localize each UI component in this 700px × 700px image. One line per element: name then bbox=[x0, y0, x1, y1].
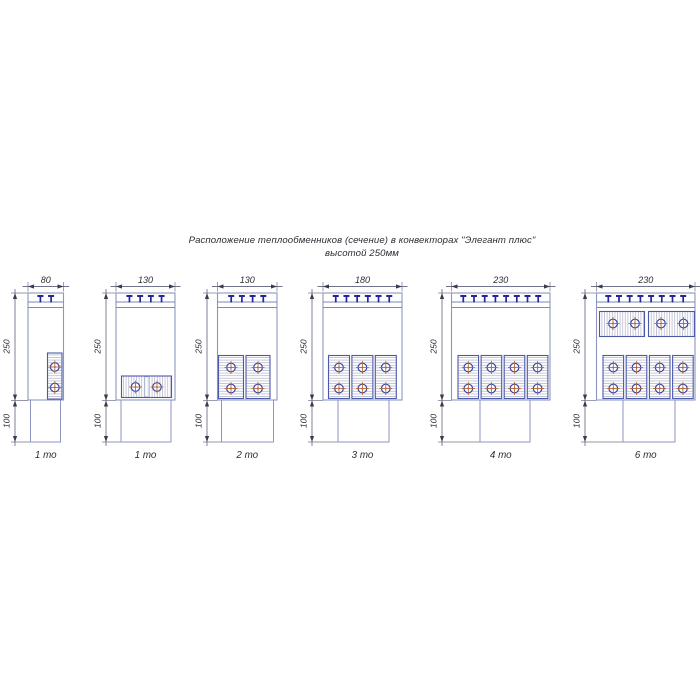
air-duct bbox=[222, 400, 274, 442]
dim-width-label: 230 bbox=[492, 275, 508, 285]
convector-130-1to: 1302501001 то bbox=[93, 275, 181, 461]
dim-width-label: 180 bbox=[355, 275, 370, 285]
dim-foot-label: 100 bbox=[194, 414, 204, 428]
convector-80-1to: 802501001 то bbox=[2, 275, 70, 461]
dim-height-label: 250 bbox=[93, 339, 103, 354]
dim-foot-label: 100 bbox=[429, 414, 439, 428]
air-duct bbox=[480, 400, 530, 442]
air-duct bbox=[31, 400, 61, 442]
dim-height-label: 250 bbox=[429, 339, 439, 354]
unit-count-label: 6 то bbox=[635, 450, 657, 461]
unit-count-label: 3 то bbox=[352, 450, 374, 461]
dim-height-label: 250 bbox=[194, 339, 204, 354]
dim-width-label: 230 bbox=[637, 275, 653, 285]
block-seam bbox=[145, 377, 148, 397]
unit-count-label: 1 то bbox=[135, 450, 157, 461]
convector-130-2to: 1302501002 то bbox=[194, 275, 283, 461]
air-duct bbox=[623, 400, 675, 442]
dim-foot-label: 100 bbox=[2, 414, 12, 428]
dim-height-label: 250 bbox=[2, 339, 12, 354]
air-duct bbox=[121, 400, 171, 442]
dim-foot-label: 100 bbox=[299, 414, 309, 428]
dim-width-label: 130 bbox=[138, 275, 153, 285]
convector-230-4to: 2302501004 то bbox=[429, 275, 556, 461]
unit-count-label: 2 то bbox=[235, 450, 258, 461]
convector-230-6to: 2302501006 то bbox=[572, 275, 700, 461]
dim-width-label: 80 bbox=[41, 275, 51, 285]
dim-foot-label: 100 bbox=[93, 414, 103, 428]
dim-height-label: 250 bbox=[572, 339, 582, 354]
unit-count-label: 1 то bbox=[35, 450, 57, 461]
convector-180-3to: 1802501003 то bbox=[299, 275, 408, 461]
dim-foot-label: 100 bbox=[572, 414, 582, 428]
dim-height-label: 250 bbox=[299, 339, 309, 354]
technical-drawing-canvas: 802501001 то1302501001 то1302501002 то18… bbox=[0, 0, 700, 700]
dim-width-label: 130 bbox=[240, 275, 255, 285]
air-duct bbox=[338, 400, 389, 442]
unit-count-label: 4 то bbox=[490, 450, 512, 461]
